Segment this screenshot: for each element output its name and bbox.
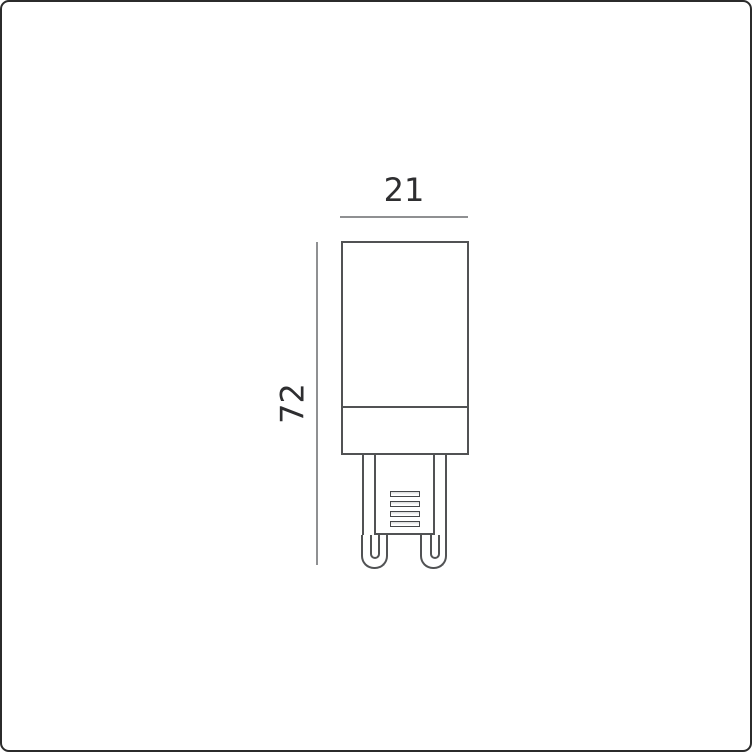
width-dimension-label: 21 bbox=[340, 174, 468, 207]
drawing-page: 21 72 bbox=[0, 0, 752, 752]
capsule-base-divider-line bbox=[341, 406, 469, 408]
width-dimension-line bbox=[340, 216, 468, 218]
vent-slot-1 bbox=[390, 491, 420, 497]
vent-slot-4 bbox=[390, 521, 420, 527]
vent-slot-3 bbox=[390, 511, 420, 517]
right-pin-tube bbox=[433, 455, 447, 535]
vent-slot-2 bbox=[390, 501, 420, 507]
right-pin-loop-slot bbox=[430, 535, 440, 559]
height-dimension-line bbox=[316, 242, 318, 565]
left-pin-loop-slot bbox=[370, 535, 380, 559]
height-dimension-label: 72 bbox=[277, 364, 310, 444]
left-pin-tube bbox=[362, 455, 376, 535]
bulb-capsule-outline bbox=[341, 241, 469, 455]
